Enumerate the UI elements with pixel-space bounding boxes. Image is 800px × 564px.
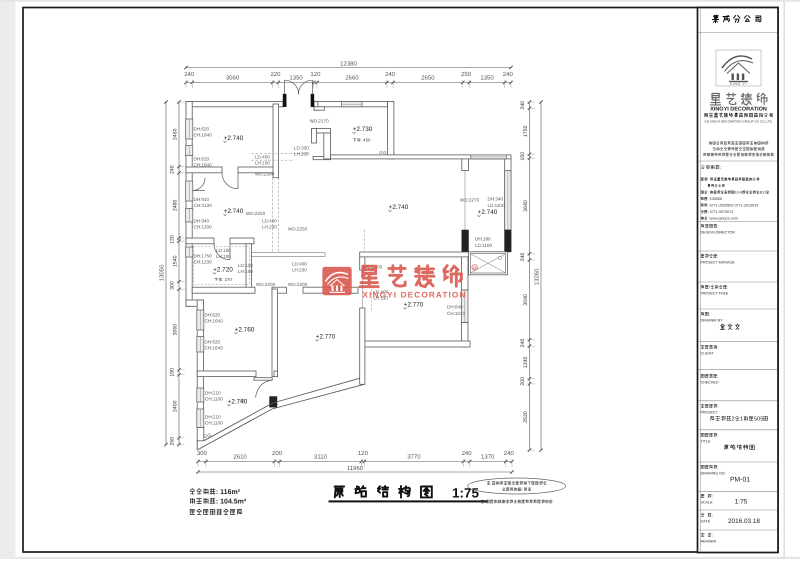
svg-text:10-6: 10-6	[735, 191, 742, 195]
svg-text:300: 300	[170, 281, 176, 290]
svg-text:3060: 3060	[173, 324, 179, 336]
svg-text::: :	[708, 191, 709, 195]
svg-text::: :	[712, 494, 713, 499]
svg-text:DH:210: DH:210	[205, 415, 221, 420]
svg-text:DH:640: DH:640	[447, 305, 463, 310]
svg-text:1350: 1350	[480, 75, 494, 82]
svg-text:DESIGN DIRECTOR: DESIGN DIRECTOR	[701, 231, 736, 235]
svg-text:LD:400: LD:400	[262, 219, 277, 224]
svg-text:DH:620: DH:620	[205, 340, 221, 345]
svg-text:LD:1100: LD:1100	[488, 203, 505, 208]
svg-text:1540: 1540	[173, 255, 179, 267]
svg-text:250: 250	[461, 71, 472, 78]
svg-text:11960: 11960	[347, 465, 364, 472]
svg-text:12380: 12380	[340, 61, 357, 68]
svg-text:1350: 1350	[289, 75, 303, 82]
svg-text:CH:1640: CH:1640	[205, 319, 224, 324]
svg-text:2650: 2650	[421, 75, 435, 82]
svg-text:2460: 2460	[173, 128, 179, 140]
svg-text:DH:340: DH:340	[488, 197, 504, 202]
svg-text:CH:1010: CH:1010	[447, 311, 466, 316]
svg-text:LH:230: LH:230	[292, 268, 307, 273]
svg-text::: :	[717, 465, 718, 470]
svg-text:: 530000: : 530000	[708, 197, 722, 201]
svg-text:DH:620: DH:620	[194, 157, 210, 162]
svg-text:: 0771-2920902 0771-2013019: : 0771-2920902 0771-2013019	[708, 204, 759, 208]
svg-text:240: 240	[520, 101, 526, 110]
svg-text:120: 120	[358, 450, 369, 457]
svg-text:CHECKED: CHECKED	[701, 381, 719, 385]
svg-text:XING YI: XING YI	[730, 82, 747, 86]
svg-text:240: 240	[504, 450, 515, 457]
svg-text:CH:1230: CH:1230	[194, 260, 213, 265]
svg-text:DH:180: DH:180	[475, 237, 491, 242]
svg-text:2400: 2400	[173, 400, 179, 412]
svg-text:120: 120	[170, 235, 176, 244]
svg-text:200: 200	[520, 377, 526, 386]
svg-text::: :	[708, 178, 709, 182]
svg-text:PROJECT MANAGE: PROJECT MANAGE	[701, 261, 736, 265]
svg-text:PROJECT FF&E: PROJECT FF&E	[701, 292, 729, 296]
svg-text:3040: 3040	[523, 294, 529, 306]
svg-text:XINGYI DECORATION: XINGYI DECORATION	[710, 106, 767, 112]
svg-text:13050: 13050	[159, 264, 166, 281]
svg-text:240: 240	[503, 71, 514, 78]
svg-text::: :	[709, 312, 710, 317]
svg-text:13260: 13260	[534, 268, 541, 285]
svg-text:300: 300	[197, 450, 208, 457]
svg-text:DH:1750: DH:1750	[194, 254, 213, 259]
svg-text:3640: 3640	[523, 200, 529, 212]
svg-text:LD:100: LD:100	[216, 248, 231, 253]
svg-text:200: 200	[272, 450, 283, 457]
svg-text:LH:230: LH:230	[294, 152, 309, 157]
svg-text:: 116m²: : 116m²	[216, 489, 241, 496]
svg-text:DH:910: DH:910	[194, 197, 210, 202]
svg-text:220: 220	[270, 71, 281, 78]
svg-text:LD:330: LD:330	[294, 146, 309, 151]
svg-text:240: 240	[170, 165, 176, 174]
svg-text:LD:400: LD:400	[292, 262, 307, 267]
svg-text:TITLE: TITLE	[701, 440, 712, 444]
svg-text:240: 240	[385, 71, 396, 78]
svg-text:2610: 2610	[233, 454, 247, 461]
svg-text:2520: 2520	[523, 411, 529, 423]
svg-text:240: 240	[520, 252, 526, 261]
svg-text:2660: 2660	[345, 75, 359, 82]
svg-text:B12: B12	[760, 191, 767, 195]
svg-text:1:75: 1:75	[452, 486, 480, 501]
svg-text:260: 260	[170, 437, 176, 446]
svg-text:CH:1640: CH:1640	[194, 133, 213, 138]
svg-text::: :	[717, 224, 718, 229]
svg-text::: :	[717, 433, 718, 438]
svg-text:: 270: : 270	[222, 277, 232, 282]
svg-text:2016.03.18: 2016.03.18	[728, 518, 760, 525]
svg-text:: 0771-5675672: : 0771-5675672	[708, 210, 734, 214]
svg-text:WD:2200: WD:2200	[288, 282, 308, 287]
svg-text:DH:210: DH:210	[205, 391, 221, 396]
svg-text::: :	[491, 481, 492, 486]
svg-text:LH:230: LH:230	[262, 225, 277, 230]
svg-text:WD:2250: WD:2250	[288, 227, 308, 232]
svg-text::: :	[720, 165, 721, 171]
svg-text:LD:400: LD:400	[255, 155, 270, 160]
svg-text:WD:2200: WD:2200	[256, 282, 276, 287]
svg-text:240: 240	[520, 339, 526, 348]
svg-text:WD:2300: WD:2300	[255, 172, 275, 177]
svg-text:CH:1330: CH:1330	[194, 225, 213, 230]
svg-text:WD:2270: WD:2270	[460, 198, 480, 203]
svg-text:: www.gxxyzs.com: : www.gxxyzs.com	[708, 217, 738, 221]
svg-text:·: ·	[522, 487, 523, 492]
svg-text:DATE: DATE	[701, 520, 711, 524]
svg-text:WD:2170: WD:2170	[310, 119, 330, 124]
svg-text:SCALE: SCALE	[701, 501, 714, 505]
svg-text:505: 505	[754, 417, 764, 423]
svg-text:3110: 3110	[314, 454, 328, 461]
svg-text:R: R	[473, 265, 476, 270]
svg-text:1240: 1240	[523, 357, 529, 369]
svg-text:120: 120	[310, 71, 321, 78]
svg-text:1: 1	[740, 417, 743, 423]
svg-text:XINGYI DECORATION: XINGYI DECORATION	[363, 291, 467, 300]
svg-text:DH:620: DH:620	[194, 127, 210, 132]
svg-text:LD:1100: LD:1100	[475, 243, 492, 248]
svg-text::: :	[712, 533, 713, 538]
svg-text:LH:100: LH:100	[238, 269, 253, 274]
svg-text::: :	[717, 254, 718, 259]
svg-text:LH:100: LH:100	[216, 254, 231, 259]
svg-text:REMARK: REMARK	[701, 540, 717, 544]
svg-text::: :	[712, 513, 713, 518]
svg-text:CH:1640: CH:1640	[194, 163, 213, 168]
svg-text:190: 190	[170, 368, 176, 377]
svg-text:240: 240	[184, 71, 195, 78]
svg-text:WD:2250: WD:2250	[246, 211, 266, 216]
svg-text:PROJECT: PROJECT	[701, 411, 719, 415]
svg-text:1370: 1370	[481, 454, 495, 461]
svg-text:CH:3130: CH:3130	[194, 203, 213, 208]
svg-text:1:75: 1:75	[735, 499, 748, 506]
svg-text::: :	[717, 345, 718, 350]
svg-text:CH:1640: CH:1640	[205, 346, 224, 351]
svg-text:LH:100: LH:100	[255, 161, 270, 166]
svg-text:CH:1100: CH:1100	[205, 421, 223, 426]
svg-text::: :	[717, 404, 718, 409]
svg-text::: :	[727, 285, 728, 290]
svg-text:: 104.5m²: : 104.5m²	[216, 499, 247, 506]
svg-text::: :	[485, 499, 486, 504]
svg-text::: :	[717, 374, 718, 379]
svg-text:DRAWER BY: DRAWER BY	[701, 319, 724, 323]
svg-text:LD:100: LD:100	[238, 263, 253, 268]
svg-text:2480: 2480	[173, 200, 179, 212]
svg-text:1750: 1750	[523, 125, 529, 137]
svg-text:3770: 3770	[407, 454, 421, 461]
svg-text:: 450: : 450	[361, 138, 371, 143]
svg-text:GD XINGYI DECORATION GROUP GX: GD XINGYI DECORATION GROUP GX CO.,LTD.	[704, 119, 773, 123]
svg-text:2: 2	[731, 417, 734, 423]
svg-text:240: 240	[462, 450, 473, 457]
svg-text:150: 150	[520, 152, 526, 161]
svg-text:CLIENT: CLIENT	[701, 352, 715, 356]
svg-text:DH:940: DH:940	[194, 219, 210, 224]
svg-text:CH:1100: CH:1100	[205, 397, 223, 402]
svg-text:3060: 3060	[226, 75, 240, 82]
svg-text:PM-01: PM-01	[730, 477, 750, 484]
svg-text:DH:620: DH:620	[205, 313, 221, 318]
svg-text:DRAWING NO.: DRAWING NO.	[701, 472, 726, 476]
